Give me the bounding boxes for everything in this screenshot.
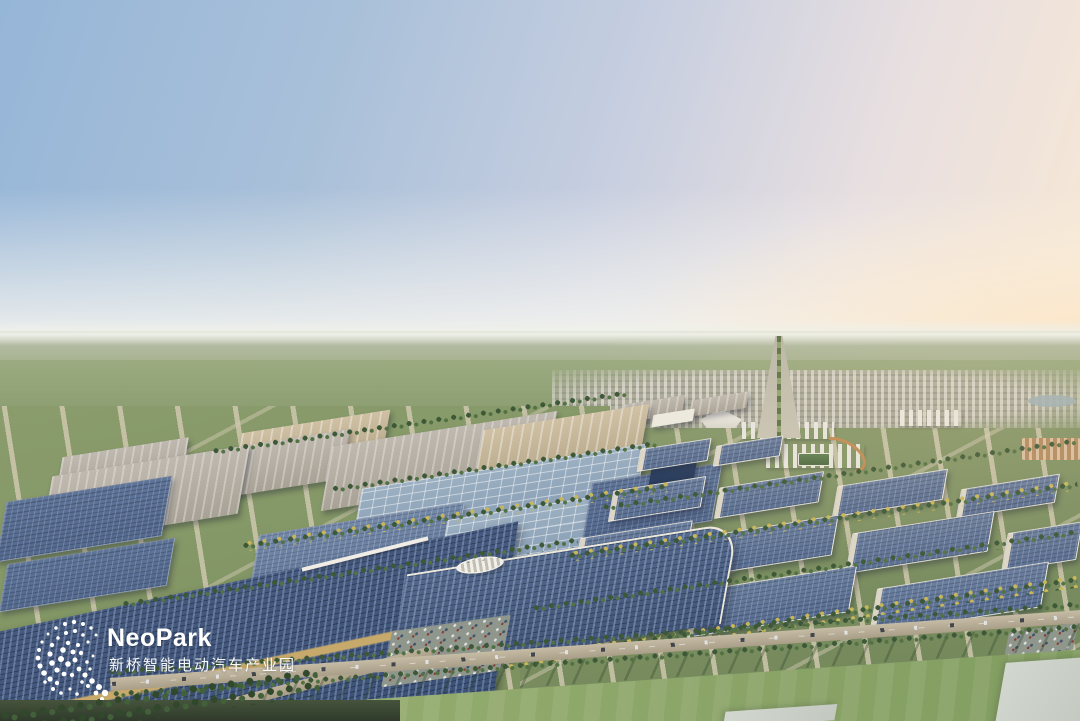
aerial-render: NeoPark 新桥智能电动汽车产业园	[0, 0, 1080, 721]
sky	[0, 0, 1080, 342]
residential-towers	[900, 410, 962, 426]
green-roof-building	[798, 453, 830, 466]
lake	[1028, 395, 1076, 407]
office-building-corner	[994, 656, 1080, 721]
horizon-mist	[0, 320, 1080, 346]
